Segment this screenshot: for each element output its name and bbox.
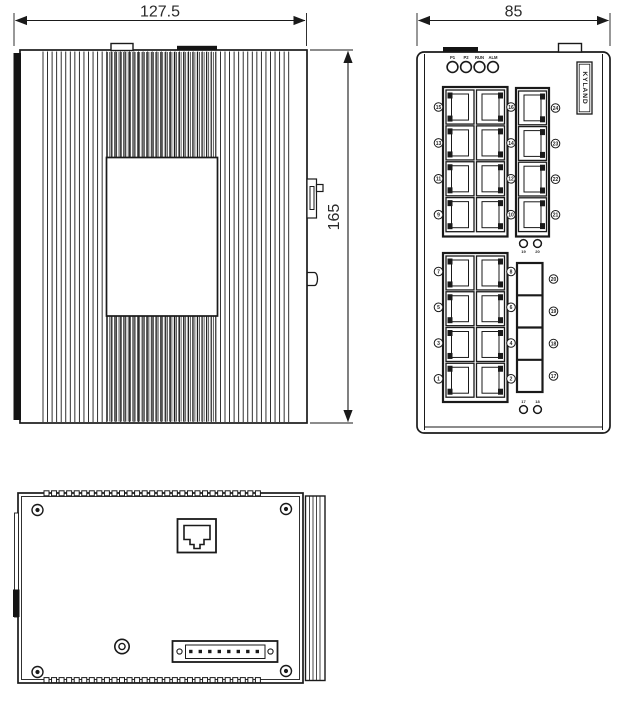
port-number: 12 [508,177,514,183]
rj45-opening [524,202,541,228]
rj45-latch [448,93,453,99]
port-number: 22 [553,177,559,183]
bottom-right-side-strip [306,496,326,681]
corner-screw-center [35,508,39,512]
rj45-latch [448,116,453,122]
label-recess [107,158,218,317]
vent-hole [89,678,94,683]
vent-hole [104,678,109,683]
dimension-front-width: 85 [417,1,610,46]
rj45-latch [540,165,545,171]
vent-hole [97,678,102,683]
rj45-latch [448,281,453,287]
vent-hole [150,491,155,496]
vent-hole [233,491,238,496]
vent-hole [240,491,245,496]
vent-hole [187,491,192,496]
rj45-opening [482,332,499,358]
vent-hole [203,491,208,496]
rj45-latch [448,164,453,170]
vent-hole [142,678,147,683]
vent-hole [150,678,155,683]
rj45-latch [498,93,503,99]
clip-ear [317,185,324,192]
rj45-latch [448,223,453,229]
vent-hole [74,678,79,683]
port-number: 16 [508,105,514,111]
drawing-canvas: 127.5 165 85 [0,0,624,702]
vent-hole [135,491,140,496]
vent-hole [44,678,49,683]
vent-hole [225,678,230,683]
rj45-opening [482,367,499,393]
terminal-pin [237,650,240,653]
vent-hole [112,678,117,683]
port-number: 15 [436,105,442,111]
vent-hole [127,491,132,496]
rj45-latch [498,187,503,193]
port-number: 5 [437,305,440,311]
vent-hole [74,491,79,496]
led-alm [488,62,499,73]
rj45-latch [448,200,453,206]
port-number: 19 [551,309,557,315]
vent-hole [248,678,253,683]
terminal-pin [256,650,259,653]
port-number: 9 [437,213,440,219]
rj45-latch [448,330,453,336]
port-number: 13 [436,141,442,147]
port-number: 23 [553,142,559,148]
front-view: 85 P1P2RUNALM KYLAND 1513119161412102423… [417,1,610,433]
rj45-latch [540,200,545,206]
terminal-screw-left [177,649,182,654]
port-number: 17 [551,374,557,380]
din-rail-clip [307,179,323,286]
port-number: 4 [510,341,513,347]
rj45-opening [482,166,499,192]
vent-hole [59,678,64,683]
led-p2 [461,62,472,73]
brand-label-text: KYLAND [581,71,588,104]
vent-hole [255,678,260,683]
top-tab-dark [177,46,217,51]
vent-hole [218,678,223,683]
side-mount-plate-edge [14,53,22,420]
rj45-opening [482,260,499,286]
rj45-latch [448,294,453,300]
port-led-label: 19 [521,249,526,254]
rj45-latch [498,151,503,157]
rj45-opening [524,131,541,157]
rj45-latch [448,353,453,359]
vent-hole [195,678,200,683]
port-number: 6 [510,305,513,311]
rj45-latch [540,188,545,194]
rj45-latch [498,317,503,323]
terminal-screw-right [268,649,273,654]
port-led [534,240,542,248]
vent-hole [172,491,177,496]
vent-hole [135,678,140,683]
rj45-latch [448,151,453,157]
rj45-opening [482,296,499,322]
vent-hole [89,491,94,496]
rj45-latch [448,259,453,265]
port-number: 20 [551,277,557,283]
vent-hole [210,678,215,683]
rj45-latch [498,200,503,206]
vent-hole [104,491,109,496]
rj45-latch [498,366,503,372]
vent-hole [172,678,177,683]
rj45-opening [482,130,499,156]
left-edge-tab [13,590,20,618]
grounding-screw [115,639,129,653]
vent-hole [180,491,185,496]
rj45-opening [524,166,541,192]
corner-screw-center [35,670,39,674]
rj45-latch [498,164,503,170]
port-led-label: 20 [535,249,540,254]
terminal-pin [246,650,249,653]
terminal-pin [227,650,230,653]
brand-label: KYLAND [577,62,592,114]
front-top-tab [559,44,582,53]
rj45-latch [498,330,503,336]
rj45-latch [540,116,545,122]
port-number: 21 [553,213,559,219]
rj45-latch [448,128,453,134]
vent-hole [165,491,170,496]
vent-hole [67,491,72,496]
rj45-latch [448,366,453,372]
vent-hole-row-bottom [44,678,260,683]
rj45-opening [452,94,469,120]
rj45-latch [540,223,545,229]
dimension-label-side-width: 127.5 [140,4,180,21]
led-label: RUN [475,55,484,60]
dimension-label-height: 165 [326,204,343,231]
led-run [474,62,485,73]
rj45-latch [540,152,545,158]
dimension-height: 165 [310,50,353,423]
port-number: 7 [437,269,440,275]
led-label: P2 [463,55,469,60]
corner-screw-center [284,507,288,511]
port-number: 11 [436,177,442,183]
rj45-latch [540,129,545,135]
port-led-label: 17 [521,399,526,404]
vent-hole [67,678,72,683]
rj45-latch [448,317,453,323]
port-number: 1 [437,377,440,383]
port-number: 10 [508,213,514,219]
rj45-latch [498,281,503,287]
vent-hole [52,491,57,496]
terminal-pin [218,650,221,653]
rj45-latch [498,353,503,359]
vent-hole [52,678,57,683]
top-tab [111,44,133,51]
port-led [520,240,528,248]
vent-hole [248,491,253,496]
vent-hole [255,491,260,496]
rj45-latch [448,187,453,193]
vent-hole [210,491,215,496]
port-number: 3 [437,341,440,347]
vent-hole [187,678,192,683]
led-label: P1 [450,55,456,60]
rj45-latch [448,389,453,395]
vent-hole [195,491,200,496]
terminal-pin [199,650,202,653]
rj45-opening [452,202,469,228]
dimension-side-width: 127.5 [14,1,307,46]
port-number: 18 [551,342,557,348]
vent-hole [157,491,162,496]
console-port [178,519,217,553]
rj45-opening [452,367,469,393]
terminal-pin [189,650,192,653]
vent-hole [218,491,223,496]
port-led [534,406,542,414]
rj45-latch [498,223,503,229]
rj45-opening [452,130,469,156]
outline-drawing-svg: 127.5 165 85 [0,0,624,702]
led-label: ALM [488,55,498,60]
corner-screw-center [284,669,288,673]
rj45-opening [452,332,469,358]
terminal-pin [208,650,211,653]
vent-hole [142,491,147,496]
power-terminal-block [173,641,278,662]
side-view: 127.5 165 [14,1,354,423]
rj45-opening [452,166,469,192]
rj45-latch [498,389,503,395]
clip-slot [310,187,314,210]
vent-hole [203,678,208,683]
port-number: 14 [508,141,514,147]
vent-hole [97,491,102,496]
vent-hole [82,678,87,683]
vent-hole [157,678,162,683]
led-p1 [447,62,458,73]
rj45-opening [482,94,499,120]
vent-hole [120,678,125,683]
rj45-opening [452,296,469,322]
vent-hole [82,491,87,496]
rj45-opening [482,202,499,228]
vent-hole [180,678,185,683]
vent-hole-row-top [44,491,260,496]
clip-foot [307,273,318,286]
rj45-latch [498,259,503,265]
vent-hole [44,491,49,496]
rj45-latch [540,94,545,100]
port-led [520,406,528,414]
port-number: 2 [510,377,513,383]
front-top-tab-dark [443,47,478,52]
terminal-block-inner [186,645,266,659]
vent-hole [240,678,245,683]
port-led-label: 18 [535,399,540,404]
bottom-view [13,491,325,683]
rj45-opening [524,95,541,121]
vent-hole [120,491,125,496]
rj45-opening [452,260,469,286]
port-number: 24 [553,106,559,112]
vent-hole [233,678,238,683]
port-number: 8 [510,269,513,275]
ground-screw-inner [119,643,125,649]
vent-hole [112,491,117,496]
vent-hole [127,678,132,683]
vent-hole [59,491,64,496]
rj45-latch [498,116,503,122]
dimension-label-front-width: 85 [505,4,523,21]
rj45-latch [498,294,503,300]
vent-hole [225,491,230,496]
vent-hole [165,678,170,683]
side-strip-frame [306,496,326,681]
rj45-latch [498,128,503,134]
